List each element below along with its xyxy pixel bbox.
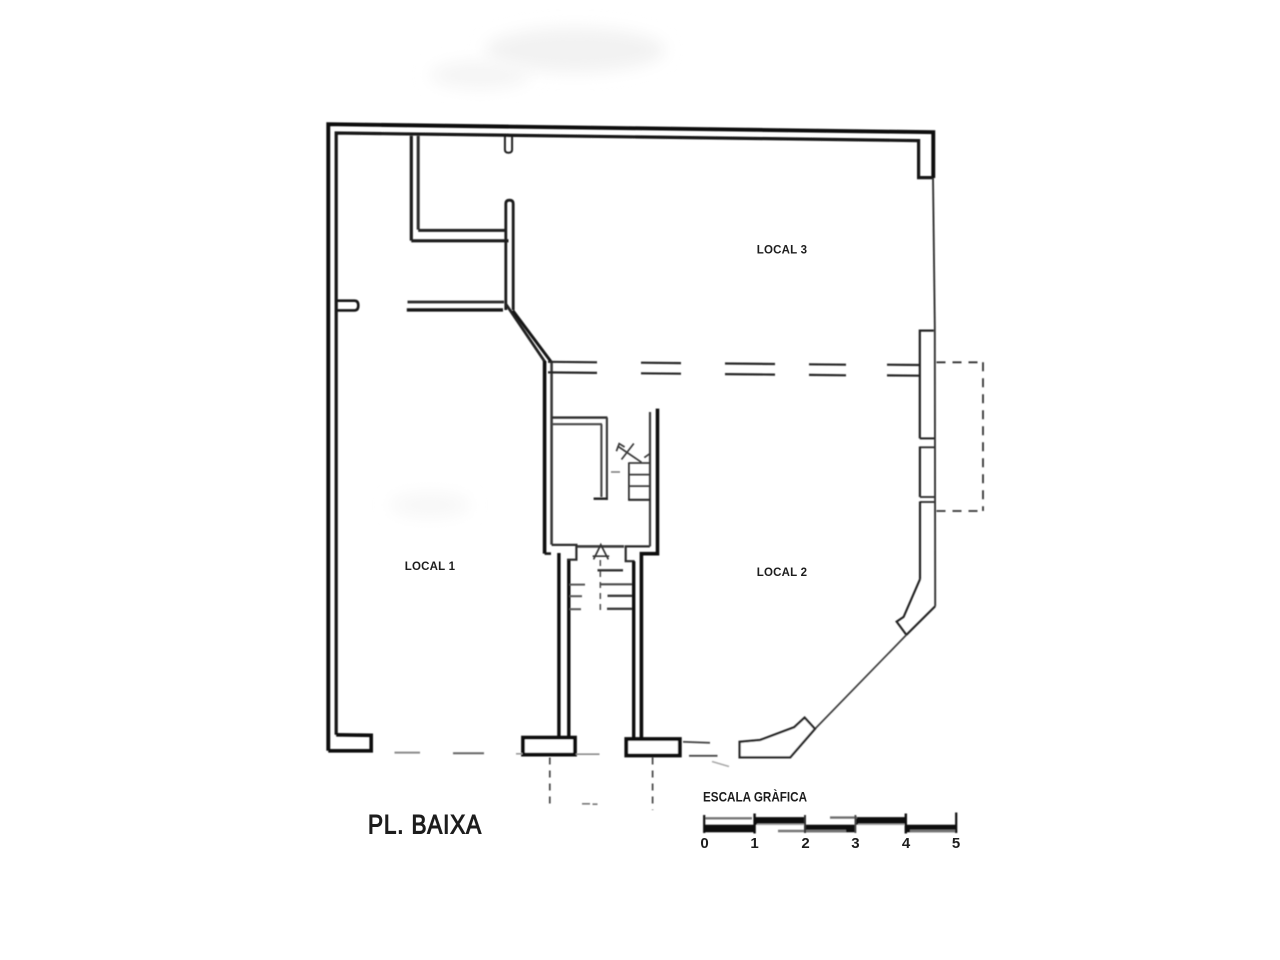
svg-text:5: 5 xyxy=(952,835,960,852)
svg-text:PL. BAIXA: PL. BAIXA xyxy=(368,810,482,840)
svg-text:ESCALA GRÀFICA: ESCALA GRÀFICA xyxy=(703,789,807,805)
svg-text:3: 3 xyxy=(851,835,859,852)
svg-text:0: 0 xyxy=(700,835,708,852)
svg-text:4: 4 xyxy=(902,835,911,852)
svg-text:LOCAL 2: LOCAL 2 xyxy=(757,567,807,579)
svg-text:LOCAL 1: LOCAL 1 xyxy=(405,561,456,573)
svg-text:1: 1 xyxy=(750,835,758,852)
svg-text:LOCAL 3: LOCAL 3 xyxy=(757,245,807,257)
svg-text:2: 2 xyxy=(801,835,809,852)
